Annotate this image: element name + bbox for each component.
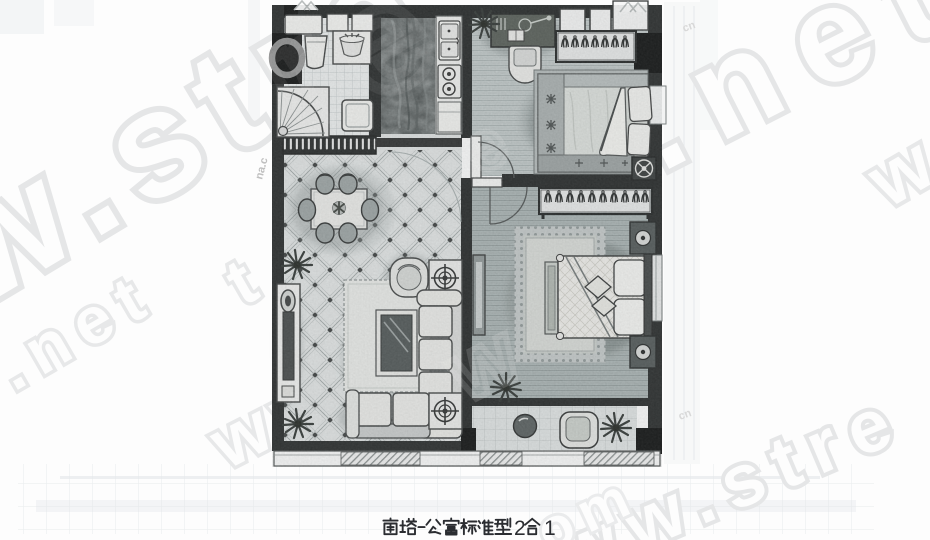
svg-text:2: 2 [514, 517, 526, 540]
svg-text:1: 1 [544, 517, 556, 540]
